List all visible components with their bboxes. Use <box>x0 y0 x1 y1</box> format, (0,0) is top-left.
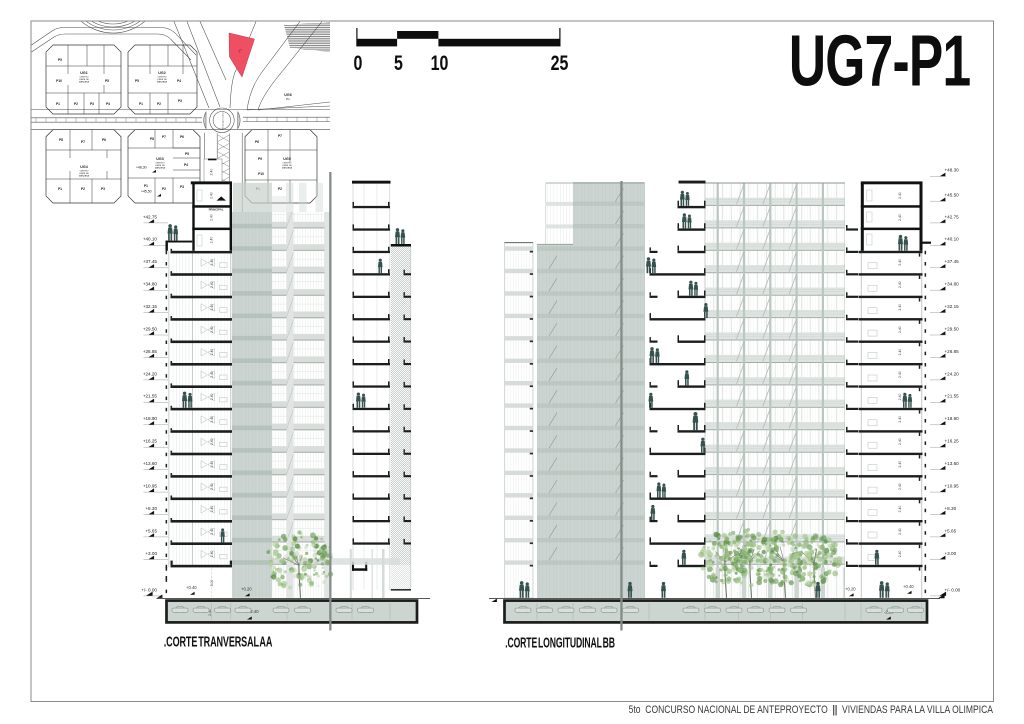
svg-text:P1: P1 <box>56 102 60 106</box>
svg-text:PRINCIPAL: PRINCIPAL <box>209 208 224 212</box>
svg-text:+29.50: +29.50 <box>945 326 960 331</box>
svg-text:P9: P9 <box>258 157 262 161</box>
svg-text:+0.40: +0.40 <box>903 584 914 589</box>
svg-text:P1: P1 <box>144 184 148 188</box>
svg-text:2.40: 2.40 <box>898 461 902 468</box>
svg-text:UG4: UG4 <box>80 165 87 169</box>
svg-text:2.40: 2.40 <box>898 371 902 378</box>
svg-text:2.40: 2.40 <box>210 326 214 333</box>
svg-text:P9: P9 <box>58 58 62 62</box>
svg-text:P3: P3 <box>178 99 182 103</box>
svg-text:2.40: 2.40 <box>210 237 214 244</box>
svg-text:2.40: 2.40 <box>898 393 902 400</box>
svg-text:+18.90: +18.90 <box>143 416 158 421</box>
svg-text:2.40: 2.40 <box>898 416 902 423</box>
svg-text:P7: P7 <box>278 134 282 138</box>
svg-text:+0.40: +0.40 <box>186 585 197 590</box>
svg-text:P2: P2 <box>162 187 166 191</box>
svg-text:+34.80: +34.80 <box>945 282 960 287</box>
svg-text:P1: P1 <box>139 102 143 106</box>
svg-text:P8: P8 <box>59 138 63 142</box>
svg-text:+10.95: +10.95 <box>945 484 960 489</box>
svg-text:+0.20: +0.20 <box>845 587 856 592</box>
svg-text:P3: P3 <box>101 187 105 191</box>
svg-text:2.40: 2.40 <box>898 506 902 513</box>
svg-text:P4: P4 <box>106 102 110 106</box>
svg-text:2.40: 2.40 <box>210 259 214 266</box>
svg-text:+45.50: +45.50 <box>945 193 960 198</box>
svg-text:+42.75: +42.75 <box>945 214 960 219</box>
svg-text:P2: P2 <box>278 187 282 191</box>
svg-text:P6: P6 <box>102 138 106 142</box>
svg-text:2.40: 2.40 <box>898 281 902 288</box>
svg-text:5: 5 <box>394 51 403 75</box>
svg-text:+48,30: +48,30 <box>136 166 147 170</box>
svg-text:2.40: 2.40 <box>210 304 214 311</box>
svg-text:2.40: 2.40 <box>210 169 214 176</box>
svg-text:P10: P10 <box>258 172 264 176</box>
svg-text:25: 25 <box>551 51 569 75</box>
svg-text:2.40: 2.40 <box>210 192 214 199</box>
svg-text:2.40: 2.40 <box>210 438 214 445</box>
svg-text:P4: P4 <box>177 79 181 83</box>
svg-text:+10.95: +10.95 <box>143 484 158 489</box>
svg-text:P4: P4 <box>184 163 188 167</box>
svg-text:2.40: 2.40 <box>898 483 902 490</box>
svg-text:MANZANA: MANZANA <box>157 81 168 84</box>
svg-text:UG3: UG3 <box>156 157 163 161</box>
svg-text:P3: P3 <box>90 102 94 106</box>
svg-text:+16.25: +16.25 <box>143 439 158 444</box>
svg-text:P1: P1 <box>286 97 290 101</box>
svg-text:+0.20: +0.20 <box>241 587 252 592</box>
svg-text:2.40: 2.40 <box>898 349 902 356</box>
svg-text:+24.20: +24.20 <box>945 371 960 376</box>
svg-text:+8.30: +8.30 <box>945 506 957 511</box>
svg-text:UG1: UG1 <box>80 71 87 75</box>
svg-text:P10: P10 <box>56 79 62 83</box>
svg-text:+/- 0.00: +/- 0.00 <box>945 587 961 592</box>
svg-text:+37.45: +37.45 <box>945 259 960 264</box>
svg-text:P8: P8 <box>150 137 154 141</box>
svg-text:+26.85: +26.85 <box>143 349 158 354</box>
svg-text:2.40: 2.40 <box>210 393 214 400</box>
svg-text:+16.25: +16.25 <box>945 439 960 444</box>
svg-text:Rotonda Central: Rotonda Central <box>222 112 225 128</box>
svg-text:+21.55: +21.55 <box>143 394 158 399</box>
svg-text:2.40: 2.40 <box>898 438 902 445</box>
svg-text:P2: P2 <box>157 102 161 106</box>
svg-text:UG5: UG5 <box>283 157 290 161</box>
svg-text:5to CONCURSO NACIONAL DE ANTE: 5to CONCURSO NACIONAL DE ANTEPROYECTO ||… <box>629 704 994 716</box>
svg-text:+34.80: +34.80 <box>143 282 158 287</box>
svg-text:P2: P2 <box>74 102 78 106</box>
svg-text:P5: P5 <box>185 152 189 156</box>
svg-text:+37.45: +37.45 <box>143 259 158 264</box>
svg-text:2.40: 2.40 <box>210 461 214 468</box>
svg-text:2.40: 2.40 <box>210 416 214 423</box>
svg-text:P6: P6 <box>180 135 184 139</box>
svg-text:2.40: 2.40 <box>210 506 214 513</box>
svg-text:+42.75: +42.75 <box>143 214 158 219</box>
svg-text:2.40: 2.40 <box>210 281 214 288</box>
svg-text:2.40: 2.40 <box>898 304 902 311</box>
svg-text:+48.30: +48.30 <box>945 168 960 173</box>
svg-text:P7: P7 <box>162 135 166 139</box>
svg-text:+5.65: +5.65 <box>145 528 157 533</box>
svg-text:+3.00: +3.00 <box>945 551 957 556</box>
svg-text:+8.30: +8.30 <box>145 506 157 511</box>
svg-text:MANZANA: MANZANA <box>155 167 166 170</box>
svg-text:2.40: 2.40 <box>210 483 214 490</box>
svg-text:MANZANA: MANZANA <box>282 167 293 170</box>
svg-text:UG7-P1: UG7-P1 <box>789 21 971 102</box>
svg-text:2.40: 2.40 <box>898 550 902 557</box>
svg-text:+45,50: +45,50 <box>141 190 152 194</box>
svg-text:P1: P1 <box>58 187 62 191</box>
svg-text:+18.90: +18.90 <box>945 416 960 421</box>
svg-text:+3.00: +3.00 <box>145 551 157 556</box>
svg-text:+32.15: +32.15 <box>945 304 960 309</box>
svg-text:2.40: 2.40 <box>898 259 902 266</box>
svg-text:+40.10: +40.10 <box>143 237 158 242</box>
svg-text:+13.60: +13.60 <box>945 461 960 466</box>
svg-text:2.40: 2.40 <box>210 371 214 378</box>
svg-text:+13.60: +13.60 <box>143 461 158 466</box>
svg-text:P2: P2 <box>81 187 85 191</box>
svg-text:.CORTE TRANVERSAL AA: .CORTE TRANVERSAL AA <box>164 633 273 650</box>
svg-text:P5: P5 <box>105 79 109 83</box>
svg-text:+/- 0.00: +/- 0.00 <box>141 587 157 592</box>
svg-text:2.40: 2.40 <box>210 528 214 535</box>
svg-text:P6: P6 <box>255 140 259 144</box>
svg-text:.CORTE LONGITUDINAL BB: .CORTE LONGITUDINAL BB <box>505 634 615 651</box>
svg-text:2.40: 2.40 <box>210 550 214 557</box>
svg-text:P7: P7 <box>81 140 85 144</box>
svg-text:+21.55: +21.55 <box>945 394 960 399</box>
svg-text:+5.65: +5.65 <box>945 528 957 533</box>
svg-text:+40.10: +40.10 <box>945 237 960 242</box>
svg-text:2.40: 2.40 <box>210 214 214 221</box>
svg-text:UG2: UG2 <box>158 71 165 75</box>
svg-text:+29.50: +29.50 <box>143 326 158 331</box>
svg-text:+26.85: +26.85 <box>945 349 960 354</box>
svg-text:+32.15: +32.15 <box>143 304 158 309</box>
svg-text:P5: P5 <box>135 79 139 83</box>
svg-text:3.00: 3.00 <box>210 580 214 587</box>
svg-text:2.40: 2.40 <box>898 326 902 333</box>
svg-text:10: 10 <box>431 51 449 75</box>
svg-text:+24.20: +24.20 <box>143 371 158 376</box>
svg-text:2.40: 2.40 <box>898 192 902 199</box>
svg-text:P3: P3 <box>180 185 184 189</box>
svg-text:2.40: 2.40 <box>210 349 214 356</box>
svg-text:MANZANA: MANZANA <box>79 175 90 178</box>
svg-text:2.40: 2.40 <box>898 528 902 535</box>
svg-text:MANZANA: MANZANA <box>79 81 90 84</box>
svg-text:0: 0 <box>354 51 363 75</box>
svg-text:2.40: 2.40 <box>898 214 902 221</box>
